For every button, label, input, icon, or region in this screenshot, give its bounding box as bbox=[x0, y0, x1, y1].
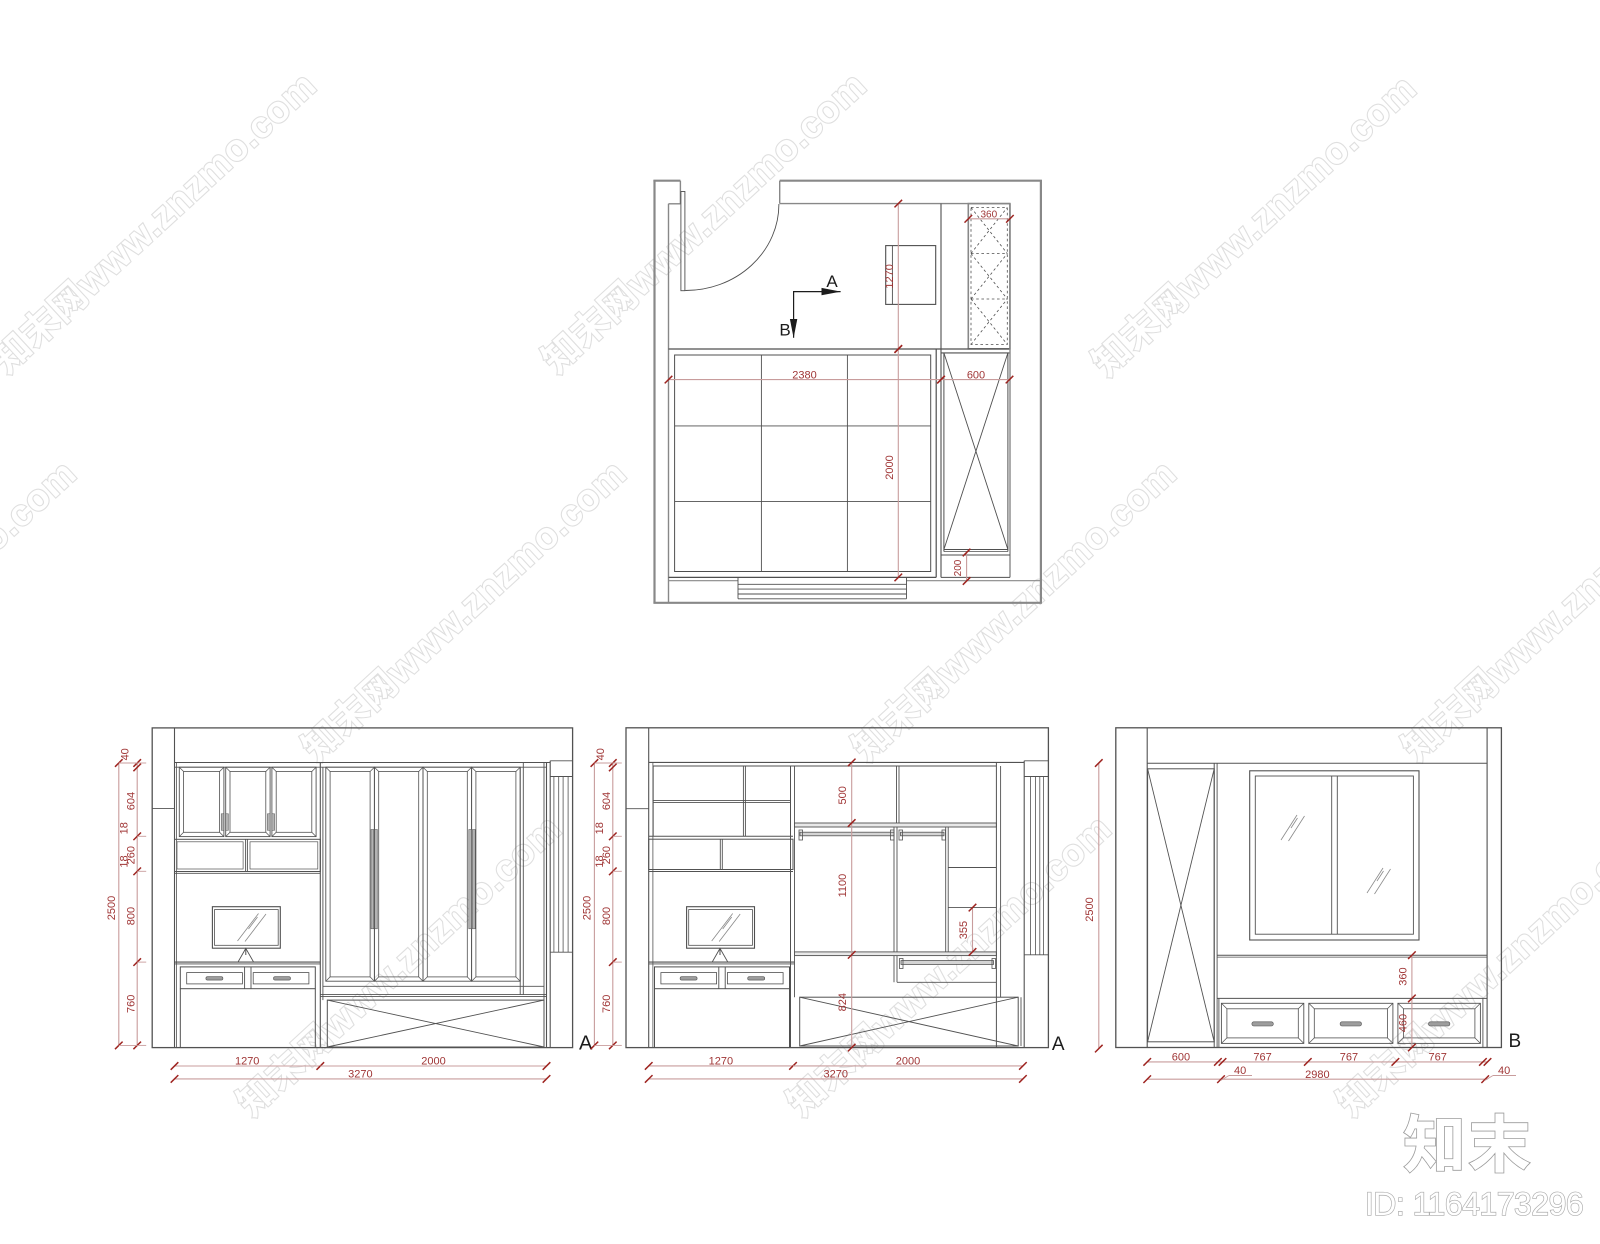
svg-text:2500: 2500 bbox=[1084, 897, 1096, 921]
svg-text:767: 767 bbox=[1340, 1052, 1358, 1064]
svg-text:A: A bbox=[1052, 1034, 1065, 1055]
svg-text:3270: 3270 bbox=[348, 1069, 372, 1081]
svg-text:40: 40 bbox=[595, 748, 607, 760]
svg-text:200: 200 bbox=[953, 559, 964, 576]
svg-text:A: A bbox=[579, 1032, 593, 1054]
svg-text:800: 800 bbox=[126, 907, 138, 925]
svg-text:355: 355 bbox=[958, 921, 970, 939]
svg-text:1270: 1270 bbox=[709, 1056, 733, 1068]
svg-text:18: 18 bbox=[118, 855, 130, 867]
svg-text:ID: 1164173296: ID: 1164173296 bbox=[1365, 1186, 1583, 1222]
svg-text:18: 18 bbox=[118, 822, 130, 834]
svg-text:A: A bbox=[826, 272, 838, 291]
svg-text:18: 18 bbox=[594, 822, 606, 834]
svg-text:767: 767 bbox=[1429, 1052, 1447, 1064]
svg-text:460: 460 bbox=[1397, 1014, 1409, 1032]
svg-text:18: 18 bbox=[594, 855, 606, 867]
svg-text:2000: 2000 bbox=[884, 455, 896, 479]
svg-text:2380: 2380 bbox=[792, 369, 816, 381]
svg-text:604: 604 bbox=[126, 792, 138, 810]
svg-text:B: B bbox=[779, 321, 790, 340]
svg-text:40: 40 bbox=[1234, 1065, 1246, 1077]
svg-text:600: 600 bbox=[967, 369, 985, 381]
svg-text:2980: 2980 bbox=[1305, 1069, 1329, 1081]
svg-text:2000: 2000 bbox=[896, 1056, 920, 1068]
svg-text:B: B bbox=[1509, 1031, 1522, 1052]
svg-text:500: 500 bbox=[837, 786, 849, 804]
svg-text:2000: 2000 bbox=[421, 1056, 445, 1068]
svg-text:1100: 1100 bbox=[837, 874, 849, 898]
svg-text:600: 600 bbox=[1172, 1052, 1190, 1064]
svg-text:760: 760 bbox=[126, 995, 138, 1013]
svg-text:40: 40 bbox=[1498, 1065, 1510, 1077]
svg-text:1270: 1270 bbox=[235, 1056, 259, 1068]
svg-text:824: 824 bbox=[837, 993, 849, 1011]
svg-text:767: 767 bbox=[1253, 1052, 1271, 1064]
svg-text:360: 360 bbox=[1397, 967, 1409, 985]
svg-text:604: 604 bbox=[601, 792, 613, 810]
svg-text:760: 760 bbox=[601, 995, 613, 1013]
svg-text:360: 360 bbox=[980, 209, 997, 220]
svg-text:3270: 3270 bbox=[824, 1069, 848, 1081]
svg-text:40: 40 bbox=[119, 748, 131, 760]
svg-text:800: 800 bbox=[601, 907, 613, 925]
svg-text:1270: 1270 bbox=[884, 264, 896, 288]
svg-text:2500: 2500 bbox=[106, 896, 118, 920]
svg-text:2500: 2500 bbox=[581, 896, 593, 920]
